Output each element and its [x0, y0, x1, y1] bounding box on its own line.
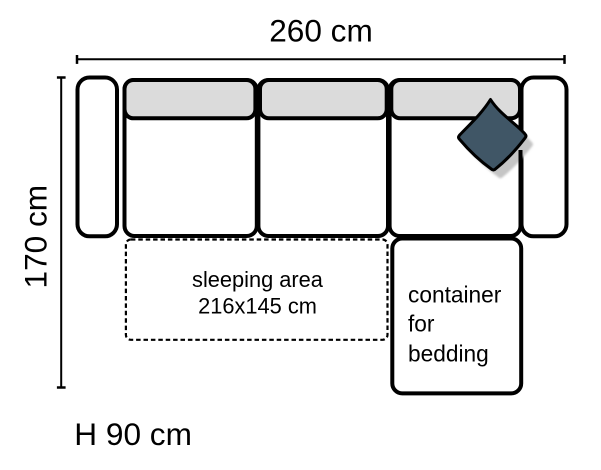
svg-text:170 cm: 170 cm [18, 185, 54, 289]
svg-text:container: container [408, 282, 502, 308]
svg-text:sleeping area: sleeping area [192, 267, 324, 292]
svg-text:bedding: bedding [408, 341, 489, 367]
svg-text:for: for [408, 311, 435, 337]
svg-text:H 90 cm: H 90 cm [74, 416, 192, 452]
svg-text:260 cm: 260 cm [269, 13, 373, 49]
svg-text:216x145 cm: 216x145 cm [198, 294, 317, 319]
